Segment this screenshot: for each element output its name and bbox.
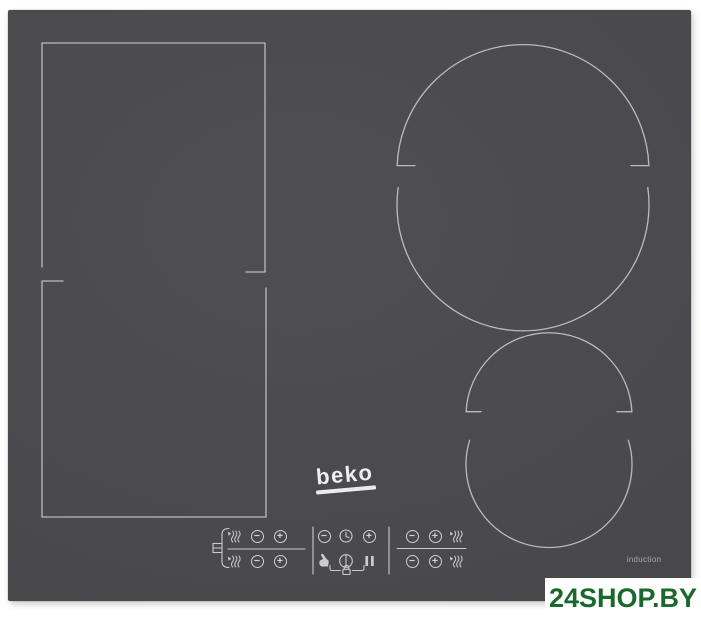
- hob-surface: [8, 10, 691, 601]
- induction-label: induction: [618, 555, 670, 564]
- watermark: 24SHOP.BY: [545, 578, 701, 618]
- right-zone1-plus-button: +: [429, 530, 442, 543]
- timer-plus-button: +: [363, 530, 376, 543]
- left-zone1-minus-button: −: [251, 530, 264, 543]
- right-zone2-plus-button: +: [429, 555, 442, 568]
- left-zone2-minus-button: −: [251, 555, 264, 568]
- product-photo: − + − + − + − + − + beko induction 24SHO…: [0, 0, 701, 618]
- timer-minus-button: −: [318, 530, 331, 543]
- right-zone2-minus-button: −: [406, 555, 419, 568]
- brand-logo-text: beko: [313, 461, 377, 488]
- left-zone2-plus-button: +: [274, 555, 287, 568]
- brand-logo: beko: [313, 461, 377, 494]
- watermark-text: 24SHOP.BY: [549, 583, 697, 614]
- left-zone1-plus-button: +: [274, 530, 287, 543]
- right-zone1-minus-button: −: [406, 530, 419, 543]
